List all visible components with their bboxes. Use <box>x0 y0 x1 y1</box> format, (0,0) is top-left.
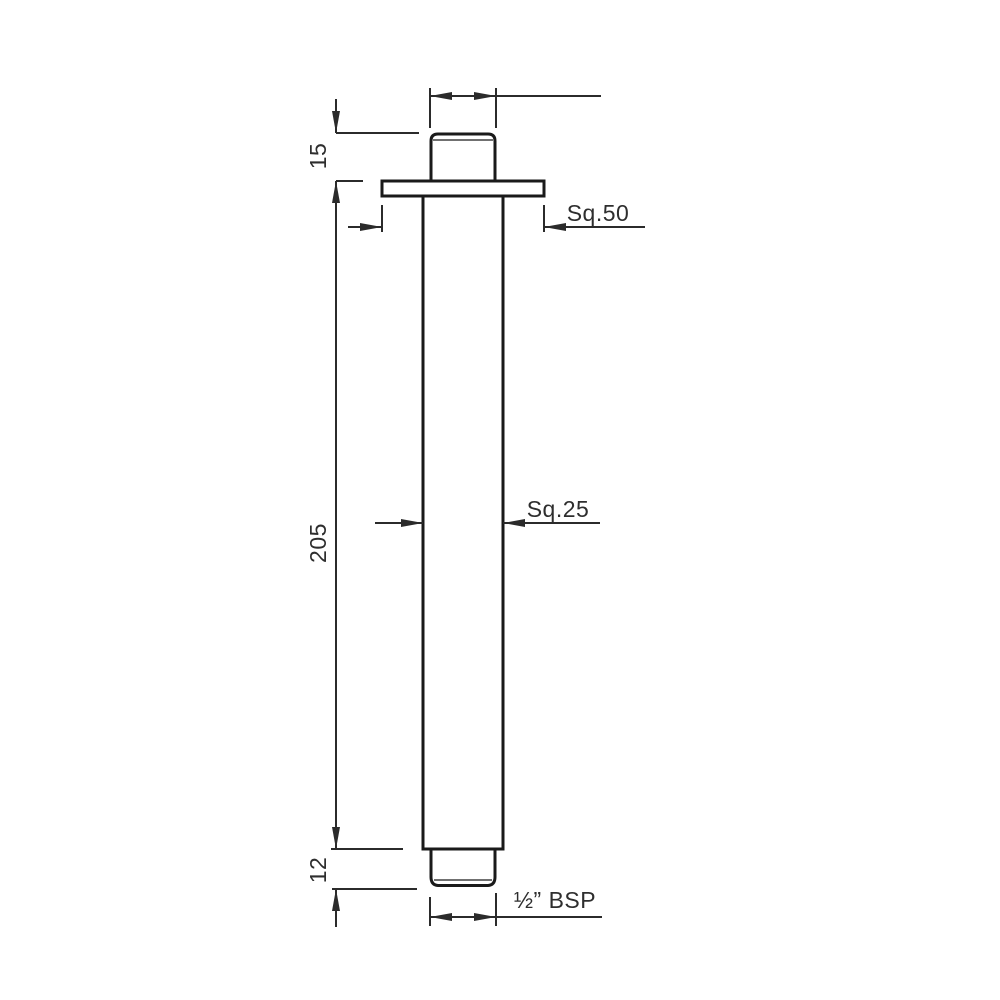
arm-tube <box>423 196 503 849</box>
dim-label-15: 15 <box>305 143 331 170</box>
dim-15-top-thread-height: 15 <box>305 99 419 169</box>
dim-12-bottom-thread-height: 12 <box>305 857 417 927</box>
arrow-down-icon <box>332 827 340 849</box>
arrow-right-icon <box>401 519 423 527</box>
dim-label-bsp: ½” BSP <box>514 887 596 913</box>
arrow-left-icon <box>430 92 452 100</box>
arrow-down-icon <box>332 111 340 133</box>
arrow-left-icon <box>430 913 452 921</box>
arrow-right-icon <box>474 913 496 921</box>
dim-bsp-thread: ½” BSP <box>430 887 602 926</box>
dim-label-205: 205 <box>305 523 331 563</box>
ceiling-flange <box>382 181 544 196</box>
arrow-right-icon <box>474 92 496 100</box>
arrow-right-icon <box>360 223 382 231</box>
arrow-left-icon <box>544 223 566 231</box>
arrow-left-icon <box>503 519 525 527</box>
dim-top-thread-width <box>430 88 601 128</box>
top-thread <box>431 134 495 181</box>
dim-label-12: 12 <box>305 857 331 884</box>
technical-drawing-page: 15 205 12 Sq.50 <box>0 0 1000 1000</box>
shower-arm-dimension-drawing: 15 205 12 Sq.50 <box>0 0 1000 1000</box>
dim-label-sq50: Sq.50 <box>567 200 630 226</box>
dim-205-arm-length: 205 <box>305 181 403 849</box>
dim-label-sq25: Sq.25 <box>527 496 590 522</box>
shower-arm-outline <box>382 134 544 886</box>
